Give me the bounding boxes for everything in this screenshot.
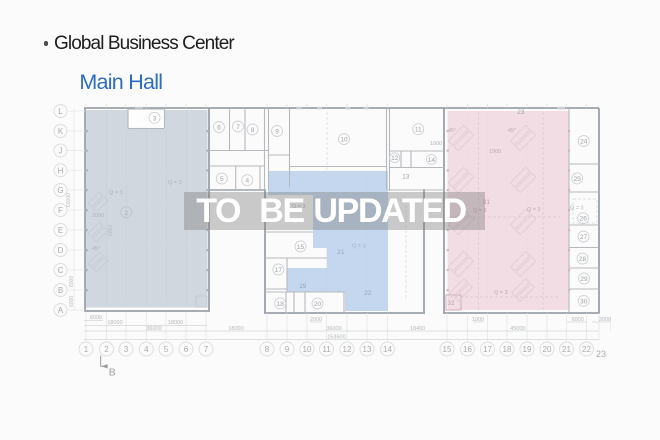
svg-text:L: L <box>58 107 63 116</box>
svg-text:8: 8 <box>265 345 270 354</box>
svg-text:3000: 3000 <box>599 317 611 323</box>
svg-text:19: 19 <box>523 345 532 354</box>
svg-text:6000: 6000 <box>69 276 75 287</box>
svg-text:21: 21 <box>562 345 571 354</box>
svg-text:45°: 45° <box>508 128 516 134</box>
svg-text:7: 7 <box>204 345 209 354</box>
svg-text:5: 5 <box>220 176 224 183</box>
svg-text:13: 13 <box>363 345 372 354</box>
svg-text:14: 14 <box>428 157 436 164</box>
svg-text:G: G <box>57 186 63 195</box>
svg-text:18400: 18400 <box>410 326 425 332</box>
svg-text:30: 30 <box>580 298 588 305</box>
svg-text:H: H <box>58 166 64 175</box>
svg-text:9: 9 <box>275 129 279 136</box>
svg-text:Q = 3: Q = 3 <box>527 207 541 213</box>
svg-text:7: 7 <box>236 124 240 131</box>
svg-text:D: D <box>58 246 64 255</box>
svg-text:Q = 3: Q = 3 <box>168 180 182 186</box>
svg-text:9: 9 <box>285 345 290 354</box>
svg-text:24: 24 <box>580 139 588 146</box>
svg-text:Q = 3: Q = 3 <box>352 244 366 250</box>
svg-text:2: 2 <box>124 210 128 217</box>
svg-text:15: 15 <box>297 244 305 251</box>
svg-text:B: B <box>58 286 63 295</box>
svg-text:23: 23 <box>596 349 606 359</box>
svg-text:12: 12 <box>343 345 352 354</box>
svg-text:B: B <box>109 366 116 378</box>
svg-text:22: 22 <box>582 345 591 354</box>
svg-text:60000: 60000 <box>66 193 72 207</box>
svg-text:18000: 18000 <box>228 326 243 332</box>
svg-text:2000: 2000 <box>92 213 104 219</box>
svg-text:Q = 3: Q = 3 <box>109 190 123 196</box>
svg-text:14: 14 <box>383 345 392 354</box>
svg-text:18: 18 <box>277 301 285 308</box>
svg-text:28: 28 <box>579 256 587 263</box>
svg-text:27: 27 <box>580 234 588 241</box>
svg-text:12: 12 <box>391 155 399 162</box>
svg-text:36000: 36000 <box>326 326 341 332</box>
svg-text:3: 3 <box>124 345 129 354</box>
svg-text:4: 4 <box>144 345 149 354</box>
svg-text:2: 2 <box>104 345 109 354</box>
svg-text:16: 16 <box>463 345 472 354</box>
svg-text:1900: 1900 <box>489 149 501 155</box>
svg-text:A: A <box>58 306 64 315</box>
svg-text:6000: 6000 <box>90 315 102 321</box>
svg-text:8: 8 <box>251 127 255 134</box>
svg-text:21: 21 <box>337 249 345 256</box>
svg-text:10: 10 <box>303 345 312 354</box>
svg-text:6000: 6000 <box>69 296 75 307</box>
svg-text:6: 6 <box>184 345 189 354</box>
svg-text:2000: 2000 <box>310 317 322 323</box>
svg-text:19: 19 <box>299 283 307 290</box>
svg-text:11: 11 <box>415 127 422 134</box>
svg-text:25: 25 <box>574 176 582 183</box>
svg-text:Q = 3: Q = 3 <box>494 290 508 296</box>
svg-text:15: 15 <box>443 345 452 354</box>
svg-text:5: 5 <box>164 345 169 354</box>
svg-text:29: 29 <box>580 276 588 283</box>
svg-text:6000: 6000 <box>108 225 114 236</box>
svg-text:26: 26 <box>580 216 588 223</box>
svg-text:17: 17 <box>275 267 283 274</box>
svg-text:11: 11 <box>322 345 331 354</box>
svg-text:45°: 45° <box>448 128 456 134</box>
svg-text:23: 23 <box>517 109 525 116</box>
svg-text:F: F <box>58 206 63 215</box>
svg-text:18: 18 <box>503 345 512 354</box>
svg-text:4: 4 <box>245 178 249 185</box>
svg-text:3: 3 <box>153 115 157 122</box>
svg-text:18000: 18000 <box>107 320 122 326</box>
svg-text:C: C <box>58 266 64 275</box>
svg-text:22: 22 <box>364 290 372 297</box>
svg-text:1000: 1000 <box>430 141 442 147</box>
svg-text:1000: 1000 <box>472 317 484 323</box>
svg-text:153600: 153600 <box>327 335 345 341</box>
svg-text:45000: 45000 <box>510 326 525 332</box>
svg-text:20: 20 <box>543 345 552 354</box>
svg-text:6: 6 <box>217 125 221 132</box>
svg-text:Q = 3: Q = 3 <box>570 206 584 212</box>
svg-text:45°: 45° <box>92 246 100 252</box>
svg-text:20: 20 <box>314 301 322 308</box>
svg-text:6000: 6000 <box>572 317 584 323</box>
svg-text:1: 1 <box>84 345 89 354</box>
svg-text:J: J <box>59 147 63 156</box>
svg-text:13: 13 <box>402 173 410 180</box>
svg-text:K: K <box>58 127 64 136</box>
svg-text:E: E <box>58 226 63 235</box>
svg-text:10: 10 <box>340 137 348 144</box>
svg-text:36000: 36000 <box>146 326 161 332</box>
svg-text:17: 17 <box>483 345 492 354</box>
svg-text:32: 32 <box>447 300 455 307</box>
svg-text:18000: 18000 <box>168 320 183 326</box>
